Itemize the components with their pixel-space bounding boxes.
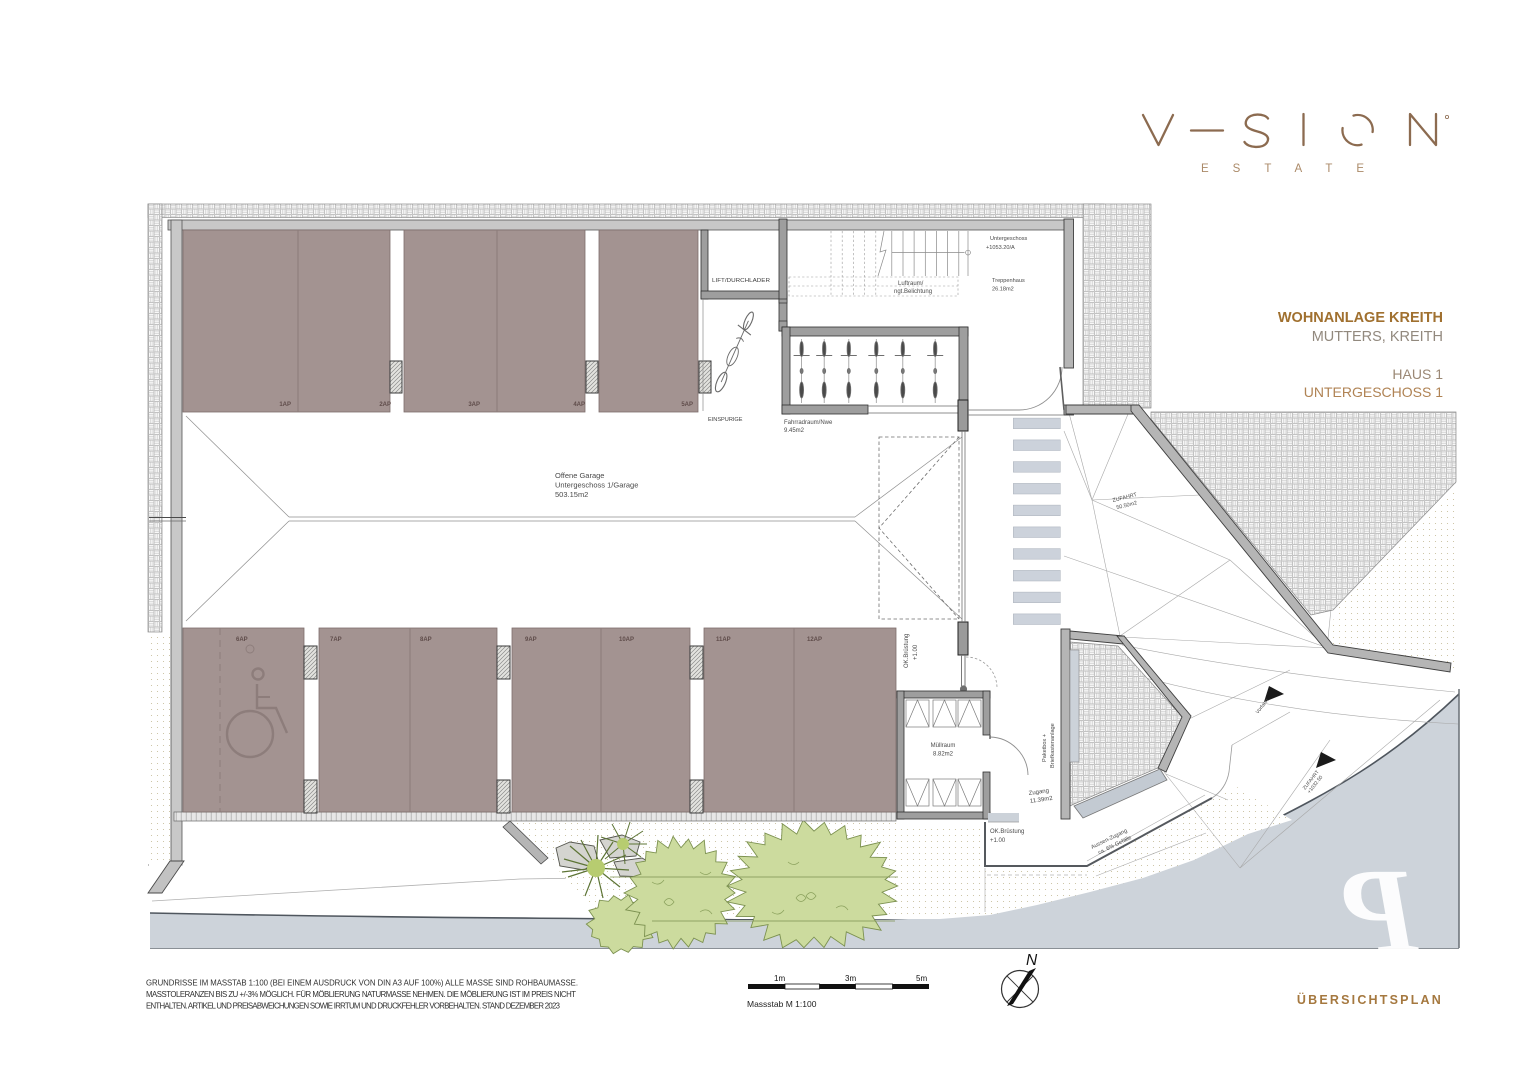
svg-text:10AP: 10AP [619, 637, 634, 643]
svg-text:Paketbox +: Paketbox + [1042, 734, 1048, 762]
svg-text:2AP: 2AP [379, 402, 391, 408]
svg-text:UNTERGESCHOSS 1: UNTERGESCHOSS 1 [1304, 384, 1443, 400]
svg-text:Untergeschoss: Untergeschoss [990, 236, 1028, 242]
svg-text:+1053.20/A: +1053.20/A [986, 245, 1015, 251]
svg-text:1m: 1m [774, 974, 785, 983]
svg-text:ESTATE: ESTATE [1201, 163, 1388, 175]
svg-text:1AP: 1AP [279, 402, 291, 408]
svg-text:+1.00: +1.00 [990, 838, 1006, 844]
svg-text:ENTHALTEN. ARTIKEL UND PREISAB: ENTHALTEN. ARTIKEL UND PREISABWEICHUNGEN… [146, 1002, 560, 1011]
svg-text:Briefkastenanlage: Briefkastenanlage [1050, 723, 1056, 768]
svg-text:3m: 3m [845, 974, 856, 983]
svg-text:9AP: 9AP [525, 637, 537, 643]
svg-text:Untergeschoss 1/Garage: Untergeschoss 1/Garage [555, 481, 638, 490]
svg-text:OK.Brüstung: OK.Brüstung [904, 634, 910, 668]
svg-text:ngt.Belichtung: ngt.Belichtung [894, 289, 932, 295]
svg-text:26.18m2: 26.18m2 [992, 287, 1014, 293]
svg-text:8.82m2: 8.82m2 [933, 752, 954, 758]
svg-text:3AP: 3AP [468, 402, 480, 408]
svg-text:11AP: 11AP [716, 637, 731, 643]
svg-text:7AP: 7AP [330, 637, 342, 643]
svg-text:6AP: 6AP [236, 637, 248, 643]
svg-text:503.15m2: 503.15m2 [555, 490, 588, 499]
svg-text:5m: 5m [916, 974, 927, 983]
svg-text:N: N [1026, 952, 1038, 969]
svg-text:Offene Garage: Offene Garage [555, 471, 604, 480]
svg-text:Treppenhaus: Treppenhaus [992, 278, 1025, 284]
svg-text:9.45m2: 9.45m2 [784, 428, 805, 434]
svg-text:HAUS 1: HAUS 1 [1392, 366, 1443, 382]
svg-text:P: P [1343, 844, 1420, 979]
svg-text:GRUNDRISSE IM MASSTAB 1:100 (B: GRUNDRISSE IM MASSTAB 1:100 (BEI EINEM A… [146, 979, 578, 988]
svg-text:MUTTERS, KREITH: MUTTERS, KREITH [1312, 329, 1443, 345]
svg-text:Fahrradraum/Nwe: Fahrradraum/Nwe [784, 420, 833, 426]
svg-text:5AP: 5AP [681, 402, 693, 408]
svg-text:12AP: 12AP [807, 637, 822, 643]
svg-text:MASSTOLERANZEN BIS ZU +/-3% MÖ: MASSTOLERANZEN BIS ZU +/-3% MÖGLICH. FÜR… [146, 990, 576, 999]
svg-text:Massstab M 1:100: Massstab M 1:100 [747, 999, 817, 1009]
svg-text:8AP: 8AP [420, 637, 432, 643]
svg-text:4AP: 4AP [573, 402, 585, 408]
svg-text:+1.00: +1.00 [913, 644, 919, 660]
svg-text:LIFT/DURCHLADER: LIFT/DURCHLADER [712, 278, 770, 284]
svg-text:ÜBERSICHTSPLAN: ÜBERSICHTSPLAN [1297, 992, 1443, 1007]
svg-text:Luftraum/: Luftraum/ [898, 281, 924, 287]
svg-text:OK.Brüstung: OK.Brüstung [990, 829, 1024, 835]
svg-text:Müllraum: Müllraum [931, 743, 956, 749]
svg-text:WOHNANLAGE KREITH: WOHNANLAGE KREITH [1278, 310, 1443, 326]
svg-text:EINSPURIGE: EINSPURIGE [708, 417, 743, 423]
